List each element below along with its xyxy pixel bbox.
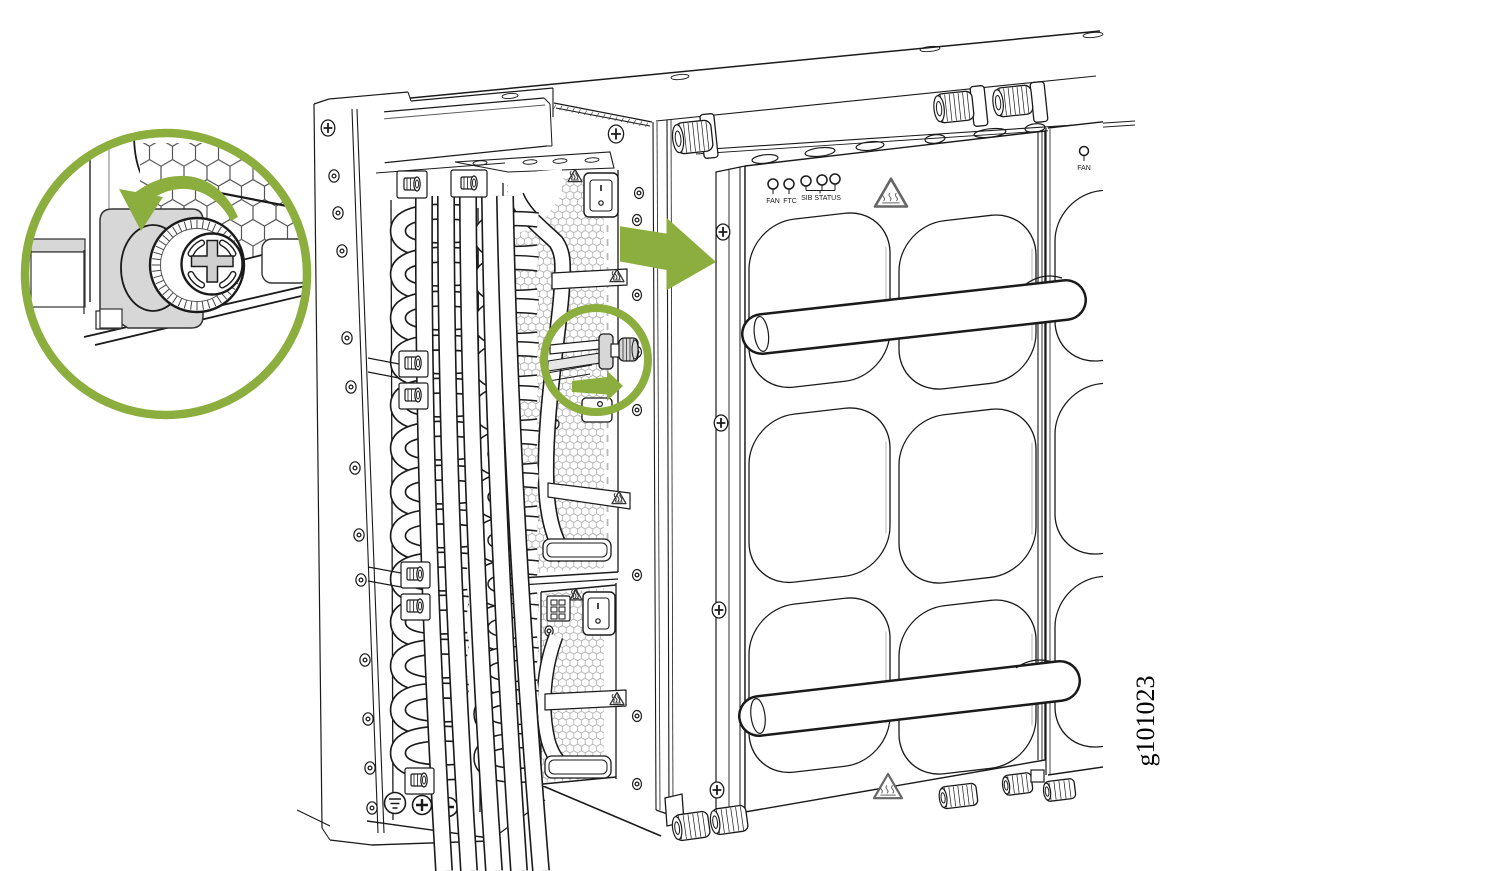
svg-text:SIB STATUS: SIB STATUS (801, 195, 841, 202)
svg-text:FAN: FAN (1077, 165, 1091, 172)
svg-text:FTC: FTC (783, 198, 797, 205)
svg-text:FAN: FAN (766, 198, 780, 205)
svg-text:g101023: g101023 (1131, 676, 1160, 767)
